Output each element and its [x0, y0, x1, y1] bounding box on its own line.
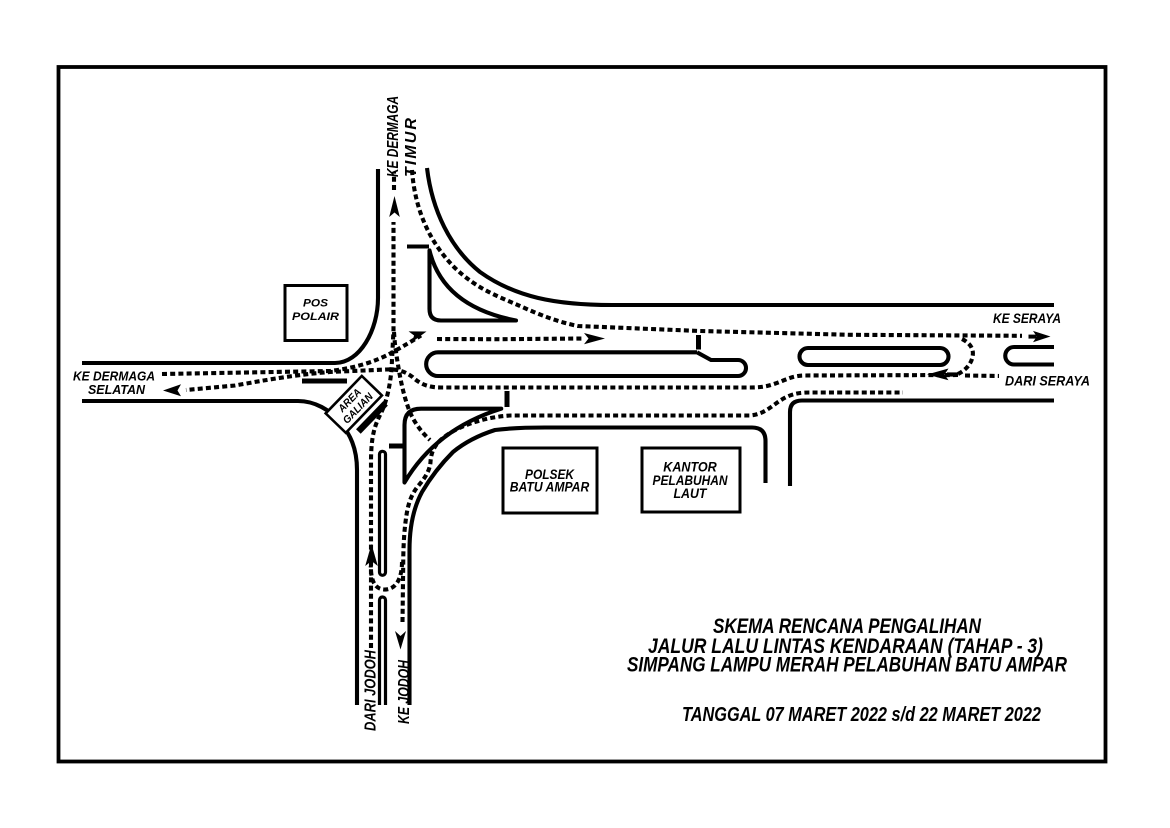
svg-text:TANGGAL 07 MARET 2022 s/d 22 M: TANGGAL 07 MARET 2022 s/d 22 MARET 2022 [682, 704, 1041, 726]
svg-text:POS: POS [303, 298, 329, 310]
svg-text:DARI JODOH: DARI JODOH [363, 649, 380, 731]
svg-text:DARI SERAYA: DARI SERAYA [1005, 373, 1090, 389]
svg-text:POLAIR: POLAIR [292, 311, 339, 323]
svg-text:SELATAN: SELATAN [88, 382, 146, 397]
svg-text:KE SERAYA: KE SERAYA [993, 310, 1061, 326]
svg-text:LAUT: LAUT [674, 486, 709, 501]
svg-text:SIMPANG LAMPU MERAH PELABUHAN: SIMPANG LAMPU MERAH PELABUHAN BATU AMPAR [627, 654, 1068, 677]
svg-text:TIMUR: TIMUR [403, 118, 420, 177]
svg-text:BATU AMPAR: BATU AMPAR [510, 480, 590, 495]
svg-text:KE DERMAGA: KE DERMAGA [385, 96, 402, 177]
svg-text:KE JODOH: KE JODOH [396, 659, 413, 724]
